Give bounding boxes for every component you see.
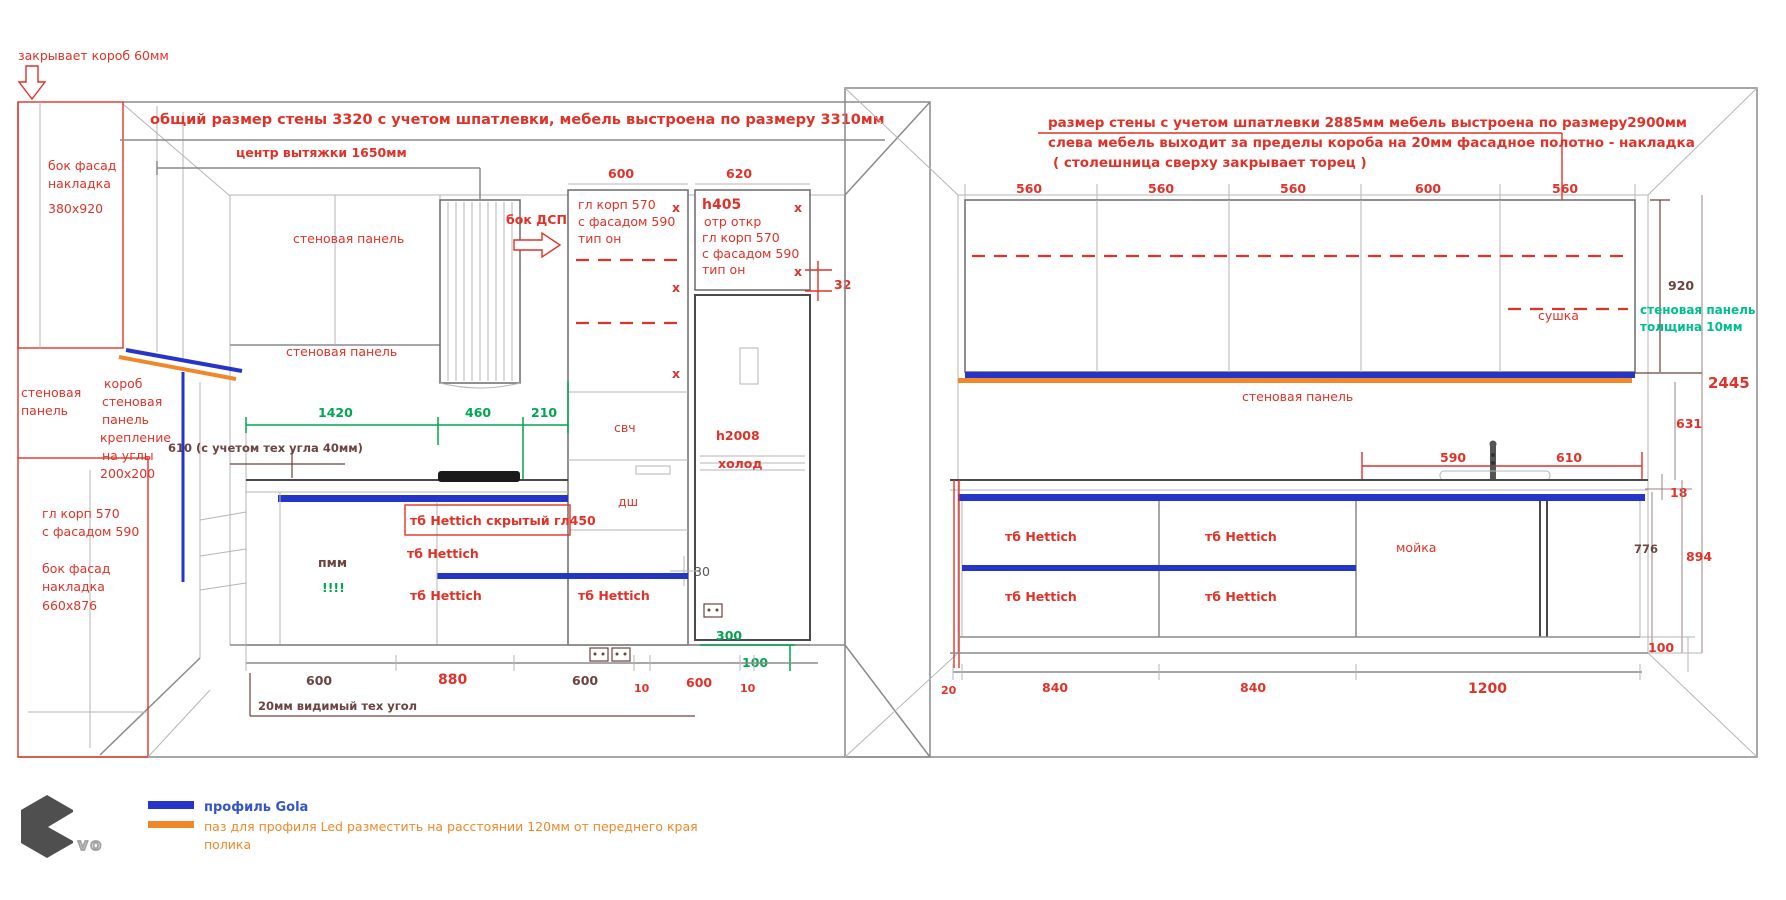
dim-560-5: 560 <box>1552 181 1578 196</box>
dim-300-label: 300 <box>716 628 742 643</box>
closes-duct-label: закрывает короб 60мм <box>18 48 169 63</box>
dim-920-label: 920 <box>1668 278 1694 293</box>
dim-1200-label: 1200 <box>1468 681 1507 697</box>
led-legend-line2: полика <box>204 837 251 852</box>
wall-panel-green-line2: толщина 10мм <box>1640 320 1743 334</box>
dryer-rack-label: сушка <box>1538 308 1579 323</box>
microwave-label: свч <box>614 420 636 435</box>
lower-left-cabinet: гл корп 570 с фасадом 590 бок фасад накл… <box>18 458 210 757</box>
sink-dims: 590 610 <box>1362 450 1642 480</box>
korob-line2: стеновая <box>102 394 162 409</box>
hettich-label: тб Hettich <box>410 588 482 603</box>
countertop <box>246 471 568 492</box>
lower-panel-line2: накладка <box>42 579 105 594</box>
fridge-label: холод <box>718 456 763 471</box>
left-wall-cabinets <box>230 195 440 345</box>
hettich-label: тб Hettich <box>1005 589 1077 604</box>
dim-620-top: 620 <box>726 166 752 181</box>
sink-cabinet-label: мойка <box>1396 540 1436 555</box>
note-610-label: 610 (с учетом тех угла 40мм) <box>168 441 363 455</box>
wall-panel-green-line1: стеновая панель <box>1640 303 1756 317</box>
dim-840-a: 840 <box>1042 680 1068 695</box>
led-legend-line1: паз для профиля Led разместить на рассто… <box>204 819 698 834</box>
lower-panel-size: 660x876 <box>42 598 97 613</box>
cab-b-line2: отр откр <box>704 214 761 229</box>
dim-210: 210 <box>531 405 557 420</box>
cab-a-line1: гл корп 570 <box>578 197 656 212</box>
upper-cabinet-h405: h405 отр откр гл корп 570 с фасадом 590 … <box>695 190 810 290</box>
fridge-height-label: h2008 <box>716 428 760 443</box>
fridge-handle <box>740 348 758 384</box>
dim-600-a: 600 <box>306 673 332 688</box>
lower-cab-line2: с фасадом 590 <box>42 524 139 539</box>
exclaim-label: !!!! <box>322 580 345 595</box>
oven-label: дш <box>618 494 638 509</box>
facade-panel-line2: накладка <box>48 176 111 191</box>
cab-a-line3: тип он <box>578 231 621 246</box>
led-swatch <box>148 821 194 828</box>
socket-icon <box>612 648 630 661</box>
cab-b-line4: с фасадом 590 <box>702 246 799 261</box>
cab-b-line3: гл корп 570 <box>702 230 780 245</box>
korob-line5: на углы <box>102 448 154 463</box>
gola-legend-label: профиль Gola <box>204 800 308 815</box>
right-title-line3: ( столешница сверху закрывает торец ) <box>1053 155 1367 171</box>
dim-840-b: 840 <box>1240 680 1266 695</box>
dim-560-1: 560 <box>1016 181 1042 196</box>
bok-dsp-label: бок ДСП <box>506 212 567 227</box>
dim-600-c: 600 <box>686 675 712 690</box>
right-arrow-icon <box>514 233 560 257</box>
evo-logo-text: VO <box>78 838 104 853</box>
dishwasher-label: пмм <box>318 555 347 570</box>
dim-560-2: 560 <box>1148 181 1174 196</box>
right-wall-cabinets: сушка <box>958 200 1635 383</box>
hettich-label: тб Hettich <box>1005 529 1077 544</box>
dim-880: 880 <box>438 672 467 688</box>
dim-600-top: 600 <box>608 166 634 181</box>
right-bottom-dims: 20 840 840 1200 <box>941 664 1642 697</box>
facade-panel-size: 380x920 <box>48 201 103 216</box>
right-dim-stack: 920 стеновая панель толщина 10мм 2445 63… <box>1634 195 1756 672</box>
dim-560-3: 560 <box>1280 181 1306 196</box>
right-elevation: размер стены с учетом шпатлевки 2885мм м… <box>845 88 1757 757</box>
tech-corner-label: 20мм видимый тех угол <box>258 699 417 713</box>
upper-left-facade-panel: бок фасад накладка 380x920 <box>18 102 123 348</box>
left-top-dims: 600 620 <box>568 166 810 184</box>
left-wall-panel-1: стеновая <box>21 385 81 400</box>
right-countertop <box>950 480 1648 668</box>
note-610: 610 (с учетом тех угла 40мм) <box>168 441 363 478</box>
right-base-cabinets: тб Hettich тб Hettich тб Hettich тб Hett… <box>950 501 1648 653</box>
dim-2445-label: 2445 <box>1708 374 1750 392</box>
wall-panel-label-1: стеновая панель <box>293 231 404 246</box>
dim-1420: 1420 <box>318 405 353 420</box>
dim-10-b: 10 <box>740 682 756 695</box>
left-title: общий размер стены 3320 с учетом шпатлев… <box>150 112 885 128</box>
drawing-canvas: закрывает короб 60мм бок фасад накладка … <box>0 0 1786 900</box>
right-title-line2: слева мебель выходит за пределы короба н… <box>1048 135 1695 151</box>
hood-center-label: центр вытяжки 1650мм <box>236 145 407 160</box>
kitchen-elevation-drawing: закрывает короб 60мм бок фасад накладка … <box>0 0 1786 900</box>
korob-line6: 200x200 <box>100 466 155 481</box>
legend: профиль Gola паз для профиля Led размест… <box>21 795 698 858</box>
korob-line1: короб <box>104 376 143 391</box>
korob-line3: панель <box>102 412 149 427</box>
facade-panel-line1: бок фасад <box>48 158 116 173</box>
dim-590-label: 590 <box>1440 450 1466 465</box>
dim-460: 460 <box>465 405 491 420</box>
right-top-dims: 560 560 560 600 560 <box>965 181 1635 200</box>
dim-776-label: 776 <box>1634 542 1658 556</box>
left-bottom-dims: 600 880 600 10 600 10 <box>246 655 818 695</box>
korob-note: короб стеновая панель крепление на углы … <box>100 376 171 481</box>
lower-panel-line1: бок фасад <box>42 561 110 576</box>
hettich-hidden-label: тб Hettich скрытый гл450 <box>410 513 596 528</box>
x-mark: x <box>672 200 680 215</box>
dim-631-label: 631 <box>1676 416 1702 431</box>
dim-600-b: 600 <box>572 673 598 688</box>
x-mark: x <box>672 280 680 295</box>
dim-32-label: 32 <box>834 277 851 292</box>
x-mark: x <box>794 264 802 279</box>
cooktop <box>438 471 520 482</box>
lower-cab-line1: гл корп 570 <box>42 506 120 521</box>
dim-30-label: 30 <box>694 564 710 579</box>
dim-20-label: 20 <box>941 684 957 697</box>
right-title-line1: размер стены с учетом шпатлевки 2885мм м… <box>1048 115 1687 131</box>
cab-b-line1: h405 <box>702 197 741 213</box>
gola-swatch <box>148 801 194 809</box>
down-arrow-icon <box>19 66 45 99</box>
evo-logo: VO <box>21 795 104 858</box>
hettich-label: тб Hettich <box>407 546 479 561</box>
faucet-icon <box>1490 441 1497 481</box>
korob-line4: крепление <box>100 430 171 445</box>
hettich-label: тб Hettich <box>1205 589 1277 604</box>
wall-panel-label-2: стеновая панель <box>286 344 397 359</box>
fridge: h2008 холод <box>695 295 810 640</box>
dim-18-label: 18 <box>1670 485 1687 500</box>
green-dims-300-100: 300 100 <box>700 628 795 671</box>
dim-600-4: 600 <box>1415 181 1441 196</box>
x-mark: x <box>672 366 680 381</box>
dim-10-a: 10 <box>634 682 650 695</box>
left-green-dims: 1420 460 210 <box>246 381 568 481</box>
right-wall-panel-label: стеновая панель <box>1242 389 1353 404</box>
left-wall-panel-2: панель <box>21 403 68 418</box>
left-elevation: закрывает короб 60мм бок фасад накладка … <box>18 48 930 757</box>
hettich-label: тб Hettich <box>1205 529 1277 544</box>
range-hood <box>440 200 520 388</box>
socket-icon <box>590 648 608 661</box>
x-mark: x <box>794 200 802 215</box>
cab-a-line2: с фасадом 590 <box>578 214 675 229</box>
socket-icon <box>704 604 722 617</box>
cab-b-line5: тип он <box>702 262 745 277</box>
dim-610-label: 610 <box>1556 450 1582 465</box>
dim-894-label: 894 <box>1686 549 1712 564</box>
hettich-label: тб Hettich <box>578 588 650 603</box>
hood-center-dim-line <box>157 161 480 199</box>
